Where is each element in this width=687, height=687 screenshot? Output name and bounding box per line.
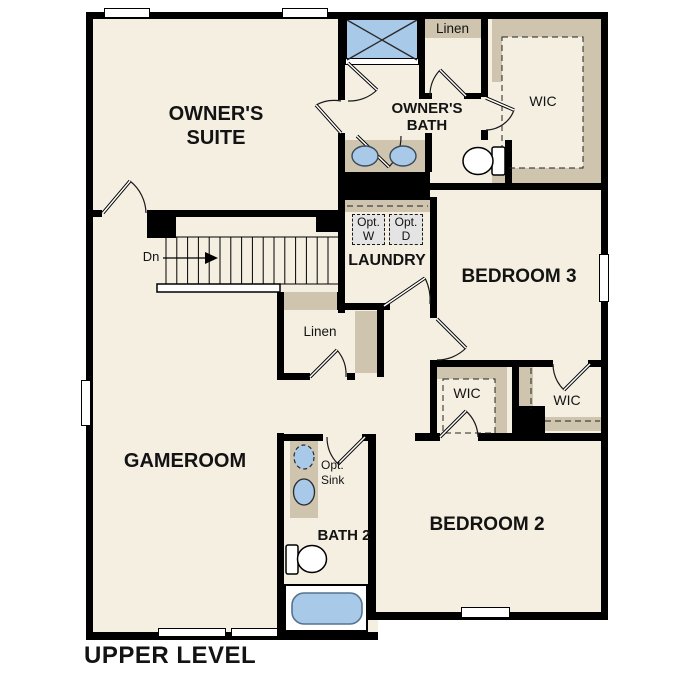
door-swing-arc: [486, 110, 514, 130]
plan-title: UPPER LEVEL: [84, 642, 344, 669]
toilet-bowl-icon: [298, 546, 327, 573]
room-label-laundry: LAUNDRY: [337, 252, 437, 270]
toilet-tank-icon: [286, 545, 298, 574]
stairs-down-arrowhead: [205, 252, 218, 264]
door-leaf: [310, 350, 337, 377]
optional-sink-icon: [294, 445, 314, 469]
door-leaf: [316, 105, 341, 133]
door-leaf: [440, 411, 466, 437]
door-leaf: [564, 364, 590, 390]
room-label-bath2: BATH 2: [313, 528, 375, 545]
door-leaf: [437, 319, 466, 348]
bathtub-icon: [292, 593, 362, 624]
sink-icon: [390, 146, 416, 166]
symbol-overlay: [0, 0, 687, 687]
stairs-direction-label: Dn: [139, 249, 163, 264]
door-leaf: [348, 63, 377, 90]
closet-label-wic-bedroom2: WIC: [437, 385, 497, 402]
sink-icon: [352, 146, 378, 166]
door-swing-arc: [430, 70, 440, 96]
door-swing-arc: [348, 90, 377, 101]
door-leaf: [486, 98, 514, 110]
toilet-tank-icon: [492, 147, 505, 175]
door-leaf: [384, 278, 425, 306]
door-swing-arc: [425, 278, 430, 304]
door-swing-arc: [130, 181, 146, 213]
door-leaf: [103, 181, 130, 213]
floor-plan: Opt. W Opt. D OWNER'S SUITE OWNER'S BATH…: [0, 0, 687, 687]
fixture-label-opt-sink: Opt. Sink: [321, 458, 351, 488]
closet-label-linen-upper: Linen: [424, 20, 481, 37]
sink-icon: [294, 479, 315, 505]
room-label-bedroom3: BEDROOM 3: [449, 266, 589, 287]
door-swing-arc: [316, 100, 341, 105]
closet-label-linen-hall: Linen: [288, 323, 352, 340]
room-label-owners-suite: OWNER'S SUITE: [151, 102, 281, 150]
door-swing-arc: [553, 364, 564, 390]
stair-railing: [157, 284, 280, 292]
door-leaf: [440, 70, 466, 96]
room-label-owners-wic: WIC: [513, 93, 573, 110]
room-label-owners-bath: OWNER'S BATH: [377, 100, 477, 134]
toilet-bowl-icon: [463, 148, 493, 175]
closet-label-wic-bedroom3: WIC: [537, 392, 597, 409]
door-swing-arc: [437, 348, 466, 360]
door-swing-arc: [337, 350, 346, 377]
room-label-bedroom2: BEDROOM 2: [417, 514, 557, 535]
room-label-gameroom: GAMEROOM: [115, 450, 255, 473]
